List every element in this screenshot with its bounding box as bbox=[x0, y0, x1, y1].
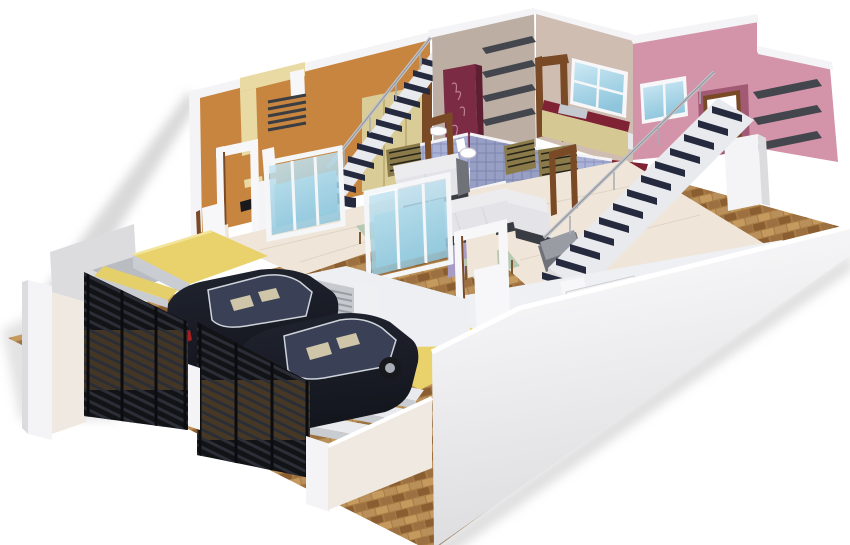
scene-svg bbox=[0, 0, 850, 545]
glass-partition-left bbox=[266, 148, 343, 239]
arch-wall-frame bbox=[290, 69, 305, 98]
kitchen-tall-unit bbox=[724, 134, 762, 211]
bath-basin bbox=[429, 127, 447, 136]
glass-partition-right bbox=[366, 175, 451, 281]
sofa-armrest bbox=[456, 158, 470, 196]
corner-pillar bbox=[28, 280, 52, 440]
floorplan-render-stage bbox=[0, 0, 850, 545]
compound-wall-left bbox=[52, 292, 86, 434]
gate-pillar-right bbox=[306, 436, 330, 512]
car-wheel-hub bbox=[385, 363, 395, 373]
corner-pillar-side bbox=[22, 280, 28, 434]
window-mullion bbox=[664, 84, 665, 116]
pink-wall-window bbox=[640, 76, 688, 124]
